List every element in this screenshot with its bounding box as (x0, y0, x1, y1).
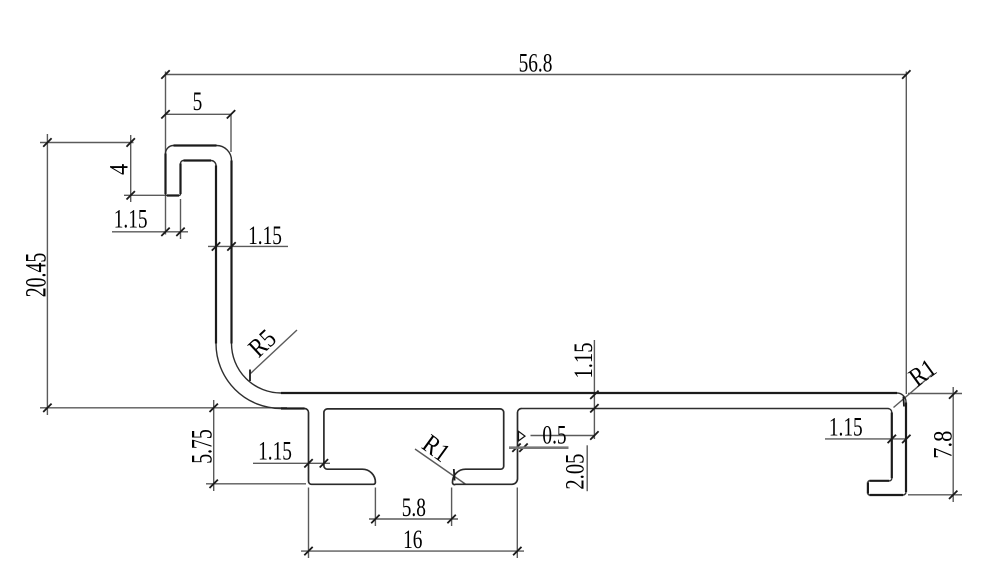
svg-text:2.05: 2.05 (561, 454, 590, 490)
svg-text:5.75: 5.75 (187, 429, 219, 464)
svg-text:1.15: 1.15 (248, 221, 282, 251)
svg-text:1.15: 1.15 (829, 412, 863, 442)
svg-text:5: 5 (193, 87, 203, 117)
svg-text:5.8: 5.8 (402, 493, 426, 523)
svg-text:1.15: 1.15 (114, 205, 148, 235)
svg-text:20.45: 20.45 (20, 253, 53, 298)
svg-text:4: 4 (105, 164, 134, 175)
svg-text:1.15: 1.15 (258, 437, 292, 467)
svg-text:1.15: 1.15 (570, 342, 599, 378)
svg-text:16: 16 (403, 525, 422, 555)
svg-text:7.8: 7.8 (929, 431, 958, 459)
svg-text:0.5: 0.5 (542, 421, 566, 451)
svg-text:56.8: 56.8 (519, 49, 553, 79)
